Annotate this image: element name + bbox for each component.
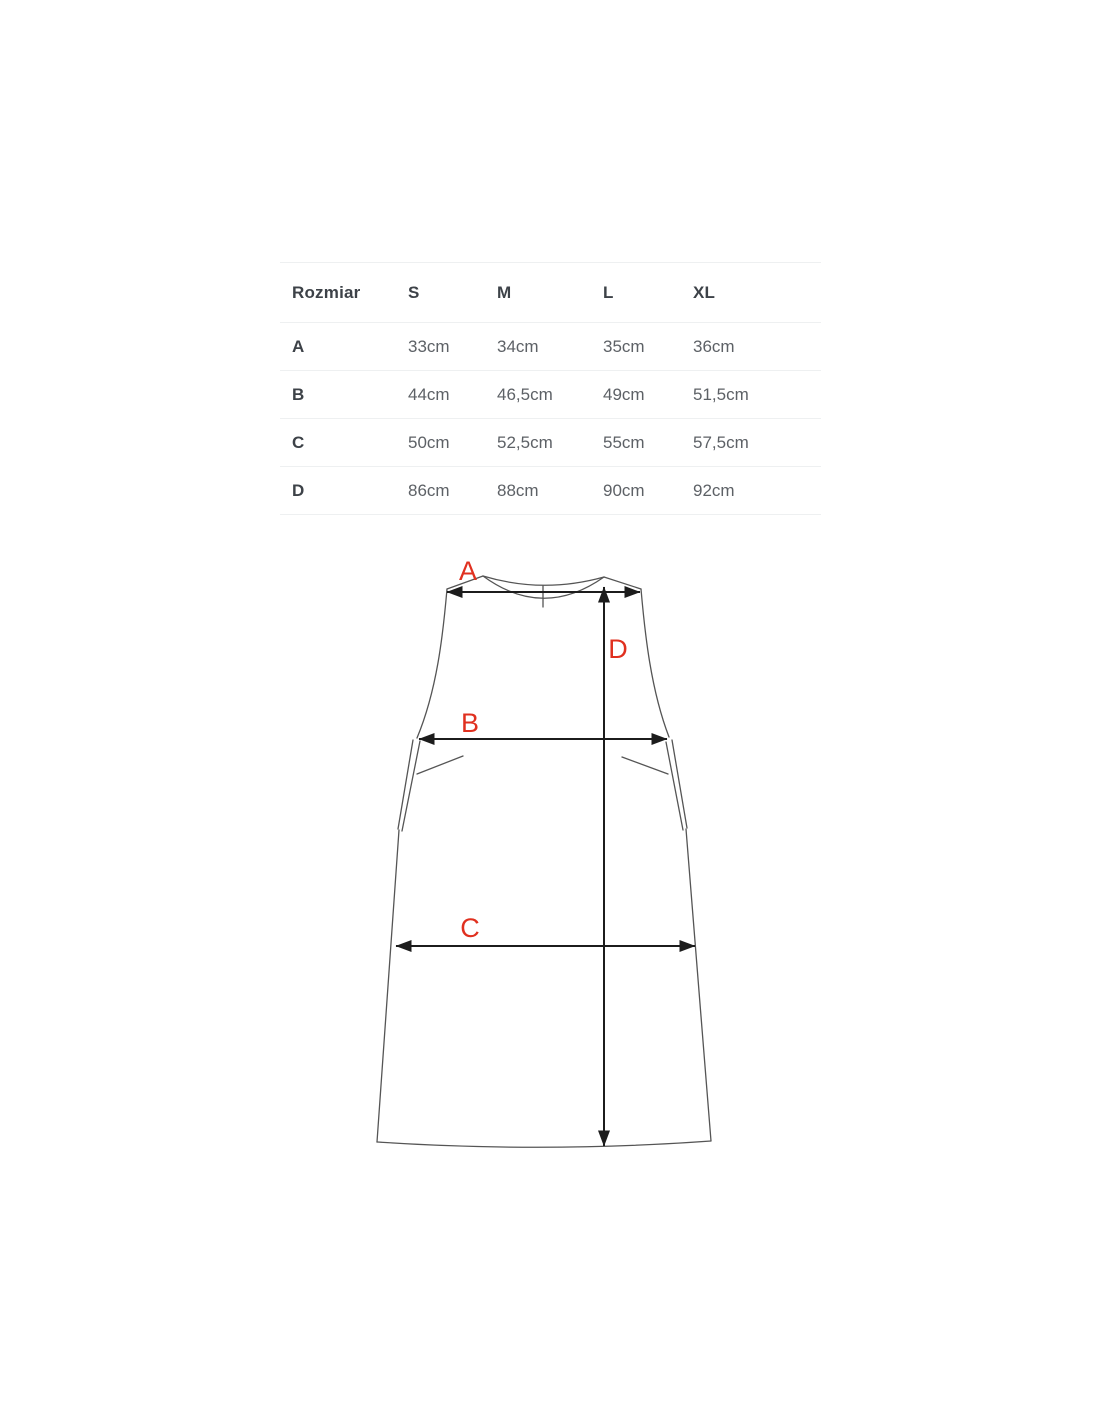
table-row-d: D 86cm 88cm 90cm 92cm xyxy=(280,467,821,515)
col-header-rozmiar: Rozmiar xyxy=(292,283,408,303)
right-pocket-line xyxy=(622,757,668,774)
cell-value: 90cm xyxy=(603,481,693,501)
col-header-s: S xyxy=(408,283,497,303)
cell-value: 50cm xyxy=(408,433,497,453)
cell-value: 33cm xyxy=(408,337,497,357)
size-table-header-row: Rozmiar S M L XL xyxy=(280,263,821,323)
measurement-arrows xyxy=(396,587,695,1146)
left-side-seam xyxy=(377,830,399,1142)
cell-value: 52,5cm xyxy=(497,433,603,453)
measure-label-a: A xyxy=(459,556,477,586)
right-shoulder-seam xyxy=(604,577,641,589)
hem-line xyxy=(377,1141,711,1147)
dress-measurement-diagram: A B C D xyxy=(340,550,780,1170)
row-label: C xyxy=(292,433,408,453)
table-row-b: B 44cm 46,5cm 49cm 51,5cm xyxy=(280,371,821,419)
row-label: A xyxy=(292,337,408,357)
row-label: D xyxy=(292,481,408,501)
col-header-l: L xyxy=(603,283,693,303)
measure-label-d: D xyxy=(608,634,628,664)
cell-value: 46,5cm xyxy=(497,385,603,405)
cell-value: 44cm xyxy=(408,385,497,405)
cell-value: 92cm xyxy=(693,481,821,501)
right-side-seam xyxy=(686,829,711,1141)
left-armhole xyxy=(417,589,447,738)
cell-value: 49cm xyxy=(603,385,693,405)
left-pocket-line xyxy=(417,756,463,774)
right-armhole xyxy=(641,589,669,737)
row-label: B xyxy=(292,385,408,405)
dress-outline xyxy=(377,576,711,1147)
table-row-a: A 33cm 34cm 35cm 36cm xyxy=(280,323,821,371)
cell-value: 36cm xyxy=(693,337,821,357)
cell-value: 88cm xyxy=(497,481,603,501)
cell-value: 55cm xyxy=(603,433,693,453)
cell-value: 34cm xyxy=(497,337,603,357)
size-chart-page: Rozmiar S M L XL A 33cm 34cm 35cm 36cm B… xyxy=(0,0,1100,1422)
table-row-c: C 50cm 52,5cm 55cm 57,5cm xyxy=(280,419,821,467)
measure-label-c: C xyxy=(460,913,480,943)
size-table: Rozmiar S M L XL A 33cm 34cm 35cm 36cm B… xyxy=(280,262,821,515)
cell-value: 86cm xyxy=(408,481,497,501)
measure-label-b: B xyxy=(461,708,479,738)
cell-value: 51,5cm xyxy=(693,385,821,405)
col-header-xl: XL xyxy=(693,283,821,303)
back-neckline xyxy=(483,576,604,585)
col-header-m: M xyxy=(497,283,603,303)
cell-value: 57,5cm xyxy=(693,433,821,453)
cell-value: 35cm xyxy=(603,337,693,357)
